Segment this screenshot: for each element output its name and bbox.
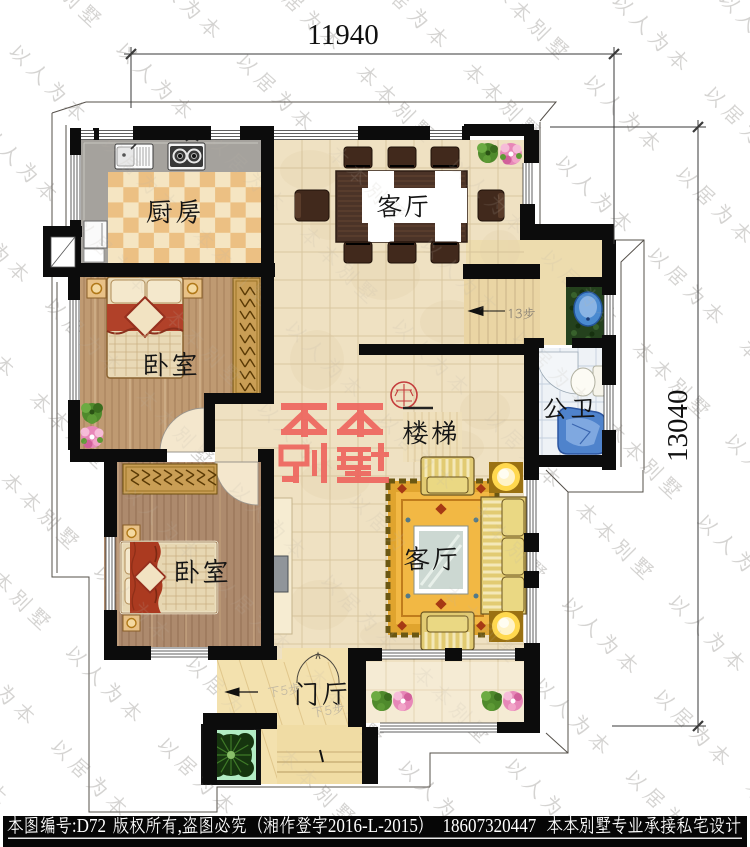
svg-text:,: , — [178, 815, 182, 838]
svg-text:11940: 11940 — [307, 19, 378, 51]
svg-text:18607320447: 18607320447 — [442, 815, 536, 838]
svg-text::D72: :D72 — [72, 815, 106, 838]
svg-text:2016-L-2015: 2016-L-2015 — [328, 815, 418, 838]
svg-text:13040: 13040 — [662, 390, 694, 463]
